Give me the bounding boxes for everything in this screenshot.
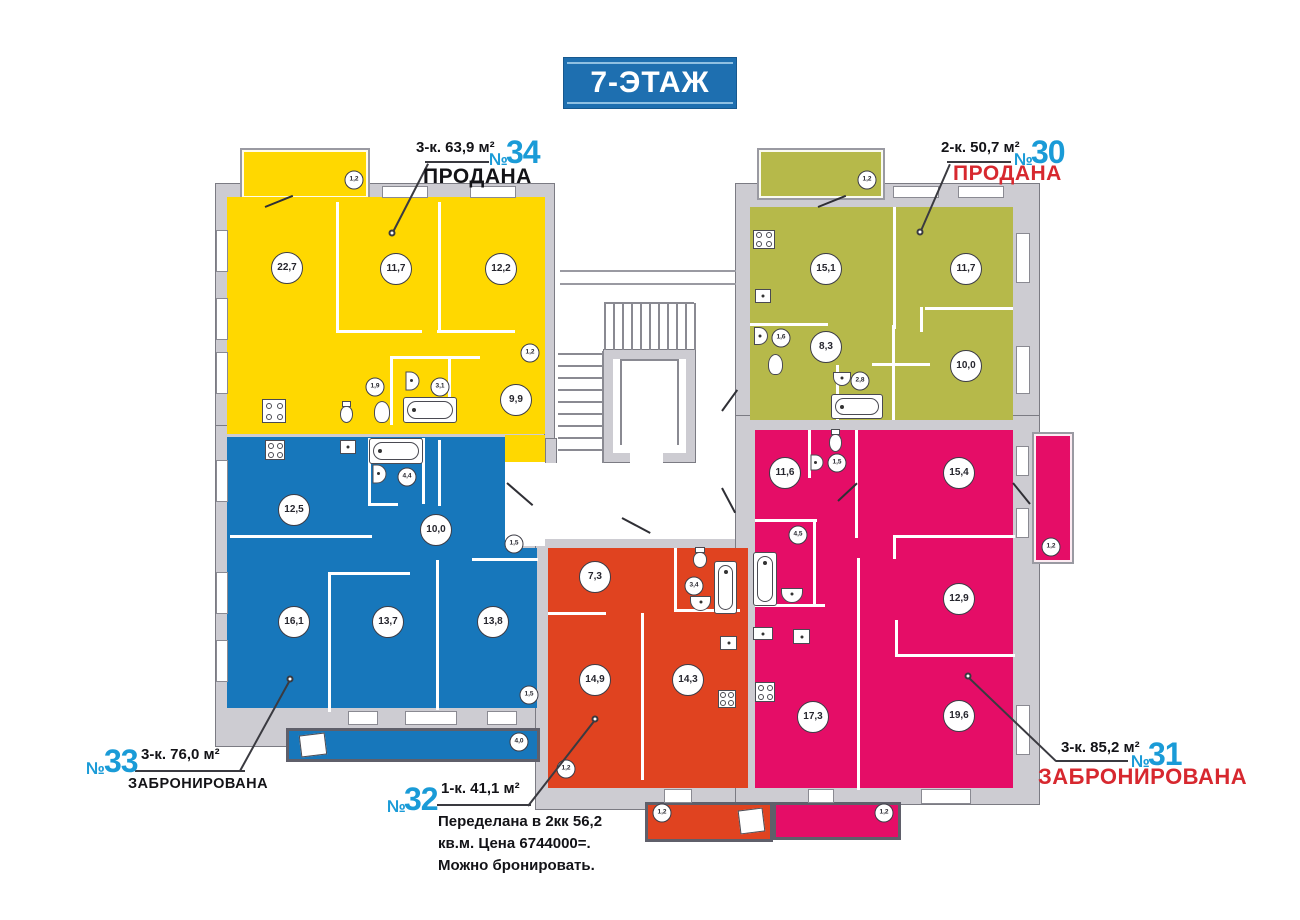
bathtub-icon [714,561,737,614]
stair-step [558,353,602,355]
toilet-icon [829,434,842,452]
sink-icon [340,440,356,454]
room-area-badge: 14,9 [579,664,611,696]
stove-icon [262,399,286,423]
room-area-badge: 17,3 [797,701,829,733]
wall-partition [437,330,515,333]
balcony-area-badge: 1,2 [653,804,672,823]
stair-divider [602,351,604,463]
wall-partition [920,307,923,332]
sink-icon [793,629,810,644]
wall-partition [641,613,644,780]
stair-step [558,365,602,367]
apartment-30-status: ПРОДАНА [953,162,1062,186]
stair-step [558,377,602,379]
wall-partition [472,558,538,561]
room-area-badge: 1,9 [366,378,385,397]
room-area-badge: 3,1 [431,378,450,397]
apartment-31-area-label: 3-к. 85,2 м² [1061,739,1140,756]
wall-partition [750,323,828,326]
sink-icon [753,627,773,640]
apartment-34-area-label: 3-к. 63,9 м² [416,139,495,156]
stair-step [622,303,624,350]
apartment-30-area[interactable] [750,207,1013,420]
window [921,789,971,804]
window [1016,233,1030,283]
apartment-33-number[interactable]: 33 [104,743,138,780]
room-area-badge: 8,3 [810,331,842,363]
room-area-badge: 1,5 [828,454,847,473]
toilet-icon [340,406,353,423]
wall-partition [336,202,339,332]
hall-line [560,270,736,272]
room-area-badge: 12,2 [485,253,517,285]
stove-icon [753,230,775,249]
room-area-badge: 10,0 [950,350,982,382]
wall-partition [895,620,898,656]
room-area-badge: 1,6 [772,329,791,348]
wall-partition [390,359,393,425]
apartment-30-area-label: 2-к. 50,7 м² [941,139,1020,156]
wall-partition [892,325,895,420]
room-area-badge: 9,9 [500,384,532,416]
room-area-badge: 14,3 [672,664,704,696]
stair-step [631,303,633,350]
leader-dot [592,716,599,723]
window [1016,446,1029,476]
stair-step [676,303,678,350]
wall-partition [328,572,410,575]
apartment-32-note-line1: Переделана в 2кк 56,2 [438,811,602,833]
stair-step [667,303,669,350]
balcony-area-badge: 4,0 [510,733,529,752]
label-underline [1056,760,1128,762]
room-area-badge: 11,7 [950,253,982,285]
room-area-badge: 4,4 [398,468,417,487]
window [216,572,228,614]
window [216,298,228,340]
bathtub-icon [753,552,777,606]
window [664,789,692,803]
wall-partition [674,548,677,610]
label-underline [135,770,245,772]
wall-partition [438,440,441,506]
apartment-33-area[interactable] [505,548,537,708]
window [405,711,457,725]
balcony-area-badge: 1,2 [345,171,364,190]
toilet-icon [693,552,707,568]
apartment-33-no-sign: № [86,759,105,779]
window [487,711,517,725]
apartment-31-status: ЗАБРОНИРОВАНА [1038,764,1247,790]
balcony-area-badge: 1,2 [875,804,894,823]
room-area-badge: 1,5 [520,686,539,705]
apartment-32-note-line3: Можно бронировать. [438,855,595,877]
wall-partition [895,654,1015,657]
wall-partition [548,612,606,615]
room-area-badge: 19,6 [943,700,975,732]
room-area-badge: 15,1 [810,253,842,285]
balcony-area-badge: 1,2 [858,171,877,190]
window [808,789,834,803]
stair-step [558,425,602,427]
window [216,352,228,394]
wall-partition [813,519,816,606]
room-area-badge: 4,5 [789,526,808,545]
apartment-32-number[interactable]: 32 [404,781,438,818]
room-area-badge: 11,7 [380,253,412,285]
floor-title-banner: 7-ЭТАЖ [563,57,737,109]
bathtub-icon [831,394,883,419]
apartment-34-status: ПРОДАНА [423,165,532,189]
room-area-badge: 1,2 [521,344,540,363]
elevator-opening [630,449,663,465]
stair-step [604,303,606,350]
stair-step [658,303,660,350]
window [216,640,228,682]
wall-block [545,438,557,466]
wall-partition [872,363,930,366]
stair-step [613,303,615,350]
leader-dot [917,229,924,236]
balcony-hatch-icon [299,732,327,757]
window [216,230,228,272]
pedestal-sink-icon [768,354,783,375]
window [958,186,1004,198]
apartment-33-area-label: 3-к. 76,0 м² [141,746,220,763]
wall-partition [925,307,1013,310]
stair-step [558,449,602,451]
stair-step [558,401,602,403]
wall-partition [755,519,817,522]
stair-step [694,303,696,350]
pedestal-sink-icon [374,401,390,423]
sink-icon [720,636,737,650]
apartment-32-area-label: 1-к. 41,1 м² [441,780,520,797]
room-area-badge: 16,1 [278,606,310,638]
room-area-badge: 15,4 [943,457,975,489]
wall-partition [328,572,331,712]
wall-partition [368,503,398,506]
window [348,711,378,725]
apartment-32-note-line2: кв.м. Цена 6744000=. [438,833,591,855]
balcony-area-badge: 1,2 [1042,538,1061,557]
wall-partition [857,558,860,790]
room-area-badge: 3,4 [685,577,704,596]
bathtub-icon [369,438,423,464]
label-underline [437,804,531,806]
wall-partition [230,535,372,538]
stair-step [558,389,602,391]
stair-step [558,413,602,415]
window [1016,346,1030,394]
elevator-door-outline [620,359,679,445]
stove-icon [755,682,775,702]
wall-partition [893,535,896,559]
bathtub-icon [403,397,457,423]
wall-partition [438,202,441,332]
room-area-badge: 11,6 [769,457,801,489]
wall-partition [390,356,480,359]
apartment-33-status: ЗАБРОНИРОВАНА [128,776,268,792]
wall-partition [893,207,896,329]
leader-dot [965,673,972,680]
room-area-badge: 13,8 [477,606,509,638]
room-area-badge: 22,7 [271,252,303,284]
hall-line [560,283,736,285]
stove-icon [265,440,285,460]
wall-partition [336,330,422,333]
window [382,186,428,198]
apartment-34-area[interactable] [505,435,545,462]
stair-step [640,303,642,350]
room-area-badge: 13,7 [372,606,404,638]
entrance-hall [505,462,545,546]
leader-dot [287,676,294,683]
room-area-badge: 10,0 [420,514,452,546]
balcony-hatch-icon [738,808,766,835]
room-area-badge: 7,3 [579,561,611,593]
room-area-badge: 1,5 [505,535,524,554]
room-area-badge: 12,5 [278,494,310,526]
stove-icon [718,690,736,708]
window [1016,508,1029,538]
room-area-badge: 2,8 [851,372,870,391]
floorplan-page: 7-ЭТАЖ [0,0,1300,920]
wall-partition [436,560,439,710]
room-area-badge: 12,9 [943,583,975,615]
stair-step [649,303,651,350]
window [893,186,939,198]
leader-dot [389,230,396,237]
stair-step [558,437,602,439]
sink-icon [755,289,771,303]
stair-step [685,303,687,350]
label-underline [425,161,489,163]
wall-partition [893,535,1015,538]
window [216,460,228,502]
floor-title: 7-ЭТАЖ [590,66,709,100]
